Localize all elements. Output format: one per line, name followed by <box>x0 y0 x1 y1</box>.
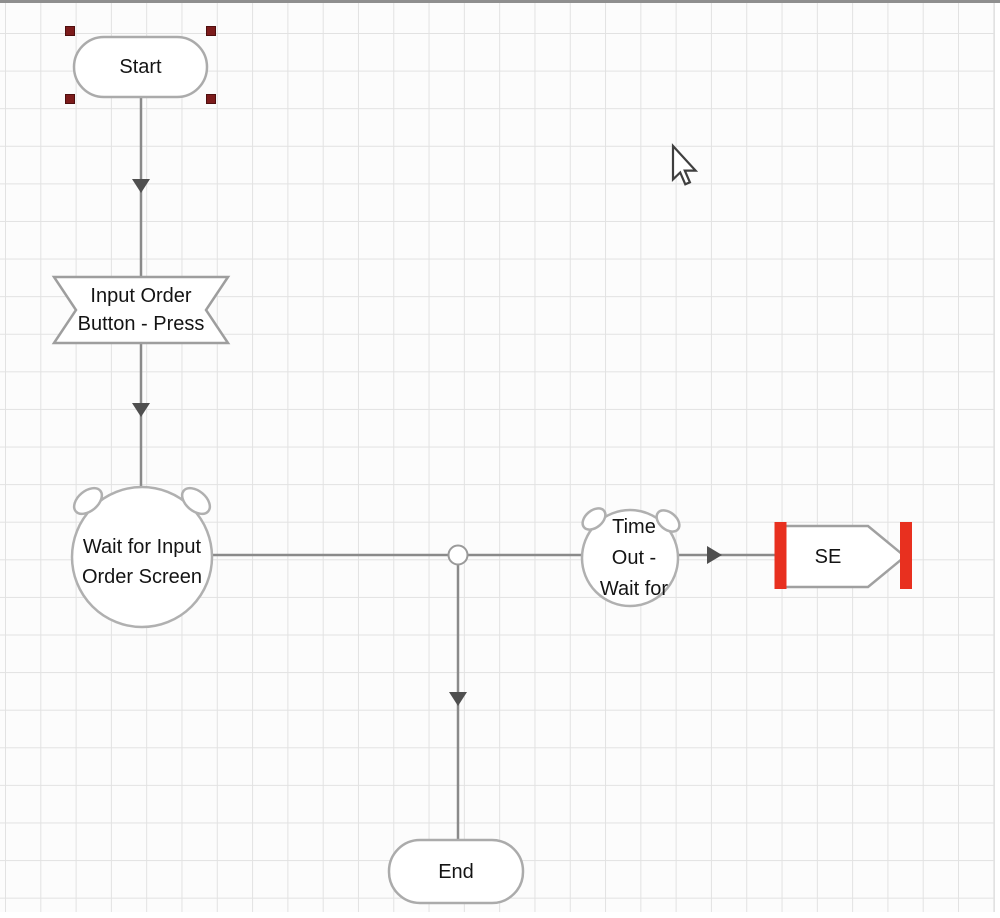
input-order-press-node[interactable] <box>54 277 228 343</box>
selection-handle-bottom-left[interactable] <box>66 95 75 104</box>
arrowhead-start-to-input <box>132 179 150 193</box>
selection-handle-top-right[interactable] <box>207 27 216 36</box>
end-node[interactable] <box>389 840 523 903</box>
se-left-red-bar <box>775 522 787 589</box>
selection-handle-top-left[interactable] <box>66 27 75 36</box>
arrowhead-timeout-to-se <box>707 546 722 564</box>
selection-handle-bottom-right[interactable] <box>207 95 216 104</box>
start-node[interactable] <box>74 37 207 97</box>
arrowhead-junction-to-end <box>449 692 467 706</box>
flow-diagram-layer <box>0 0 1000 918</box>
se-right-red-bar <box>900 522 912 589</box>
arrowhead-input-to-wait <box>132 403 150 417</box>
mouse-cursor-icon <box>673 146 696 184</box>
se-page-reference-node[interactable] <box>780 526 905 587</box>
connector-junction-anchor[interactable] <box>449 546 468 565</box>
